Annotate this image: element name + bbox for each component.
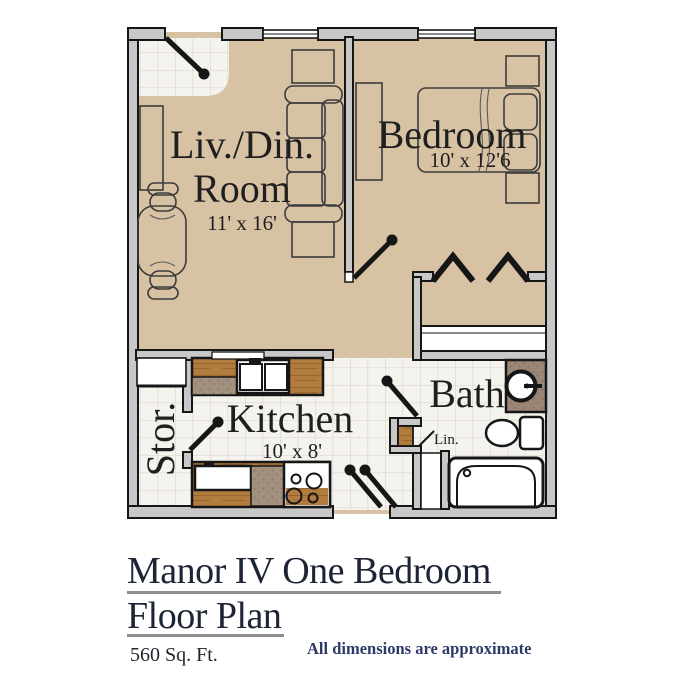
upper-counter-speckle [192,377,237,395]
floor-plan: Liv./Din. Room 11' x 16' Bedroom 10' x 1… [0,0,675,545]
entry-tile-floor [138,38,229,96]
lower-counter-speckle [251,466,284,506]
kitchen-dims: 10' x 8' [262,439,322,463]
bedroom-closet [421,326,546,351]
linen-label: Lin. [434,432,459,448]
living-dims: 11' x 16' [207,211,277,235]
closet-stub-right [528,272,546,281]
plan-title-line-1: Manor IV One Bedroom [127,552,491,590]
title-underline-2 [127,634,284,637]
pass-through [212,352,264,359]
storage-label: Stor. [138,402,183,476]
square-footage: 560 Sq. Ft. [130,644,218,667]
wall-living-bedroom [345,37,353,272]
title-underline-1 [127,591,501,594]
storage-stub-lower [183,452,192,468]
wall-cap-bedroom-door [345,272,353,282]
wall-closet-left [413,277,421,360]
wall-right [546,28,556,518]
wall-top-a [222,28,263,40]
bathtub [449,458,543,507]
wall-bath-entry-left [413,448,421,509]
sink-faucet [249,358,261,363]
lower-counter-fitting [204,461,214,466]
plan-title-line-2: Floor Plan [127,597,281,635]
kitchen-label: Kitchen [227,396,354,441]
living-label-2: Room [193,166,291,211]
wall-top-b [318,28,418,40]
linen-cabinet [398,426,413,446]
closet-shelf [421,326,546,351]
bath-doorway [421,453,441,509]
bath-label: Bath [429,371,505,416]
wall-top-c [475,28,556,40]
dimensions-note: All dimensions are approximate [307,639,531,659]
stove [284,462,330,507]
storage-shelf [137,358,186,386]
bedroom-dims: 10' x 12'6 [429,148,510,172]
dishwasher [195,466,251,490]
linen-stub-bottom [390,446,421,453]
wall-top-corner [128,28,165,40]
living-label-1: Liv./Din. [170,122,314,167]
wall-left [128,28,138,518]
wall-bath-top [421,351,546,360]
